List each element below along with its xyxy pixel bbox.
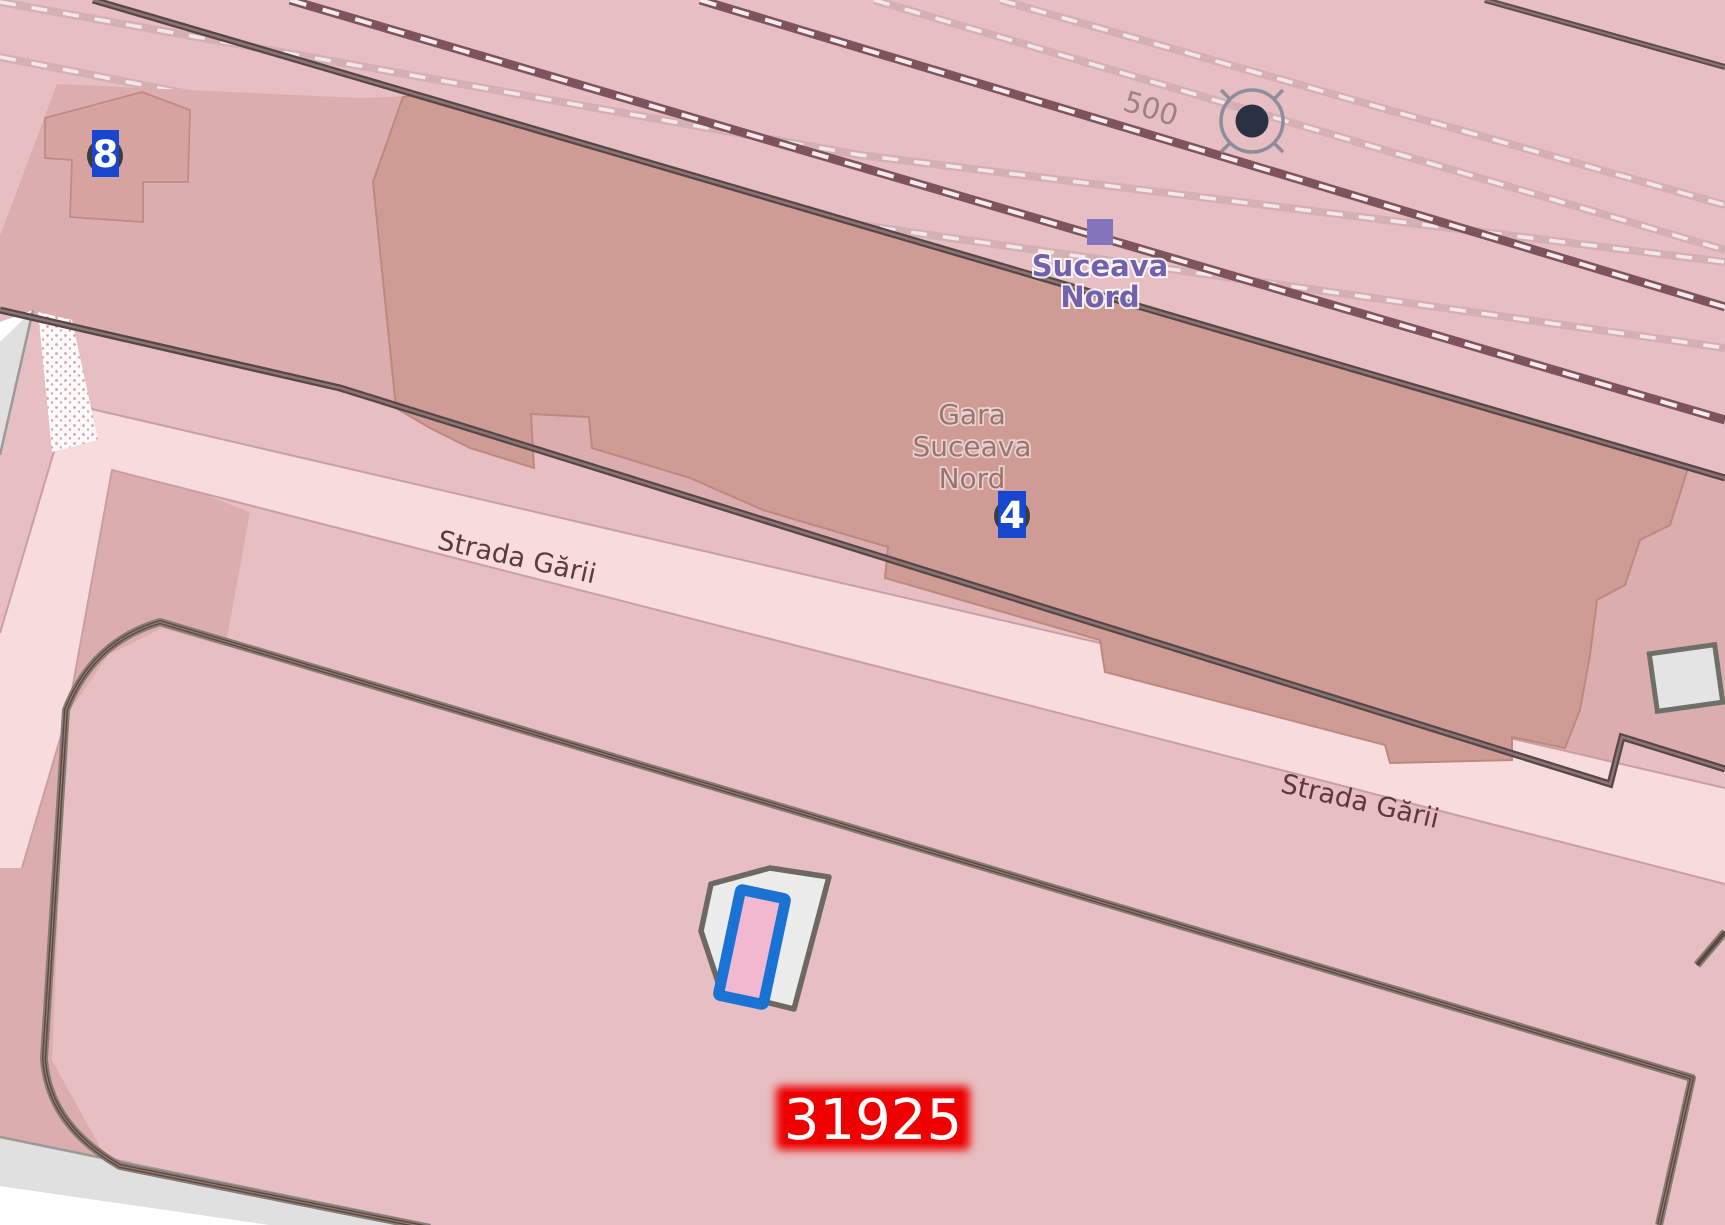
numbered-marker-4[interactable]: 4	[994, 491, 1030, 538]
parcel-ref-label: 31925	[776, 1086, 970, 1153]
railway-station-square-icon	[1087, 219, 1113, 245]
marker-number: 8	[93, 133, 119, 176]
svg-text:Suceava: Suceava	[912, 430, 1031, 463]
svg-text:Suceava: Suceava	[1032, 249, 1168, 283]
svg-text:Nord: Nord	[1060, 280, 1139, 314]
small-building-east	[1649, 645, 1722, 712]
map-svg: 500 Suceava Nord Gara Suceava Nord Strad…	[0, 0, 1725, 1225]
numbered-marker-8[interactable]: 8	[87, 130, 123, 177]
svg-text:Nord: Nord	[939, 462, 1006, 495]
svg-text:31925: 31925	[784, 1088, 962, 1153]
svg-text:Gara: Gara	[938, 398, 1006, 431]
marker-number: 4	[999, 494, 1025, 537]
map-canvas[interactable]: 500 Suceava Nord Gara Suceava Nord Strad…	[0, 0, 1725, 1225]
